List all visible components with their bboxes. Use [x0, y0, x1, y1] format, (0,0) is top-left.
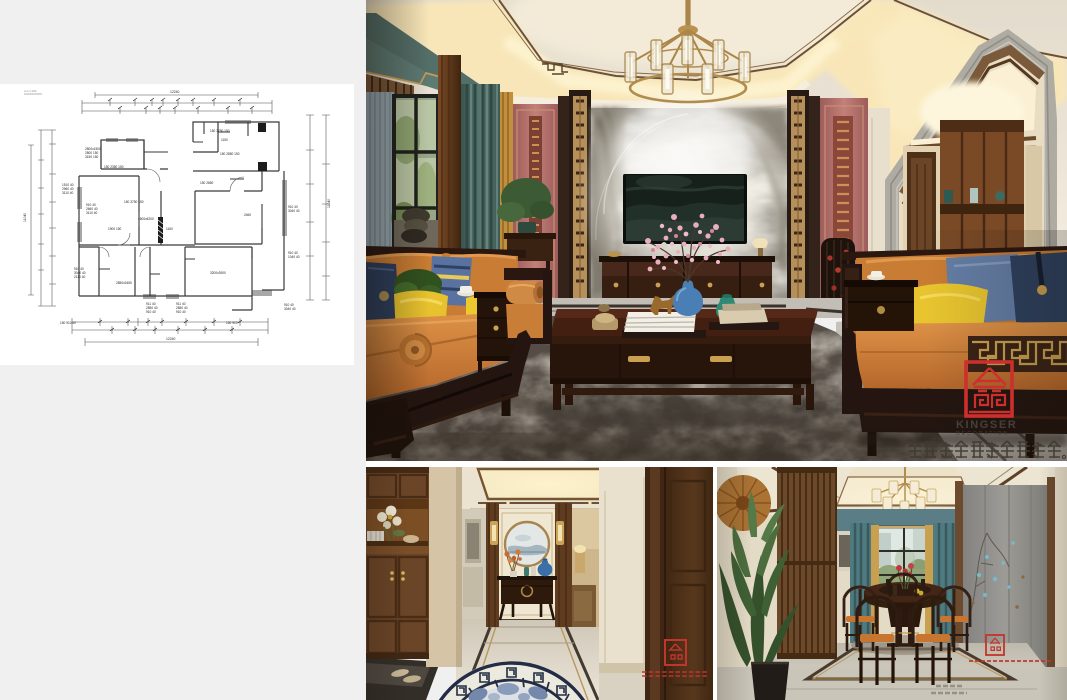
svg-text:3110 40: 3110 40 — [86, 211, 98, 215]
svg-text:150 3750 150: 150 3750 150 — [210, 129, 230, 133]
svg-text:DECORATION: DECORATION — [956, 431, 1009, 437]
svg-text:150 2850: 150 2850 — [200, 181, 214, 185]
svg-text:150 910: 150 910 — [226, 321, 238, 325]
svg-text:1900 150: 1900 150 — [108, 227, 122, 231]
svg-text:1150: 1150 — [221, 138, 228, 142]
svg-text:910 40: 910 40 — [146, 310, 156, 314]
svg-text:3150 150: 3150 150 — [85, 155, 99, 159]
svg-text:2460: 2460 — [244, 213, 251, 217]
svg-text:3040 40: 3040 40 — [284, 307, 296, 311]
svg-text:12240: 12240 — [166, 337, 176, 341]
svg-text:150 2350 150: 150 2350 150 — [104, 165, 124, 169]
svg-text:2850x3450: 2850x3450 — [116, 281, 132, 285]
svg-text:11040: 11040 — [327, 199, 331, 208]
svg-text:2110 40: 2110 40 — [74, 275, 86, 279]
svg-text:A-A 1:100: A-A 1:100 — [24, 89, 37, 93]
svg-text:1160: 1160 — [166, 227, 173, 231]
svg-text:150 3750 150: 150 3750 150 — [124, 200, 144, 204]
svg-text:3110 40: 3110 40 — [62, 191, 74, 195]
svg-text:150 910 40: 150 910 40 — [60, 321, 76, 325]
svg-text:150 2850 150: 150 2850 150 — [220, 152, 240, 156]
svg-text:3040 40: 3040 40 — [288, 209, 300, 213]
svg-text:910 40: 910 40 — [176, 310, 186, 314]
svg-text:11040: 11040 — [23, 213, 27, 222]
svg-text:4500x6200: 4500x6200 — [138, 217, 154, 221]
svg-text:KINGSER: KINGSER — [956, 419, 1017, 431]
svg-text:3200x3900: 3200x3900 — [210, 271, 226, 275]
svg-text:12240: 12240 — [170, 90, 180, 94]
svg-text:1040 40: 1040 40 — [288, 255, 300, 259]
